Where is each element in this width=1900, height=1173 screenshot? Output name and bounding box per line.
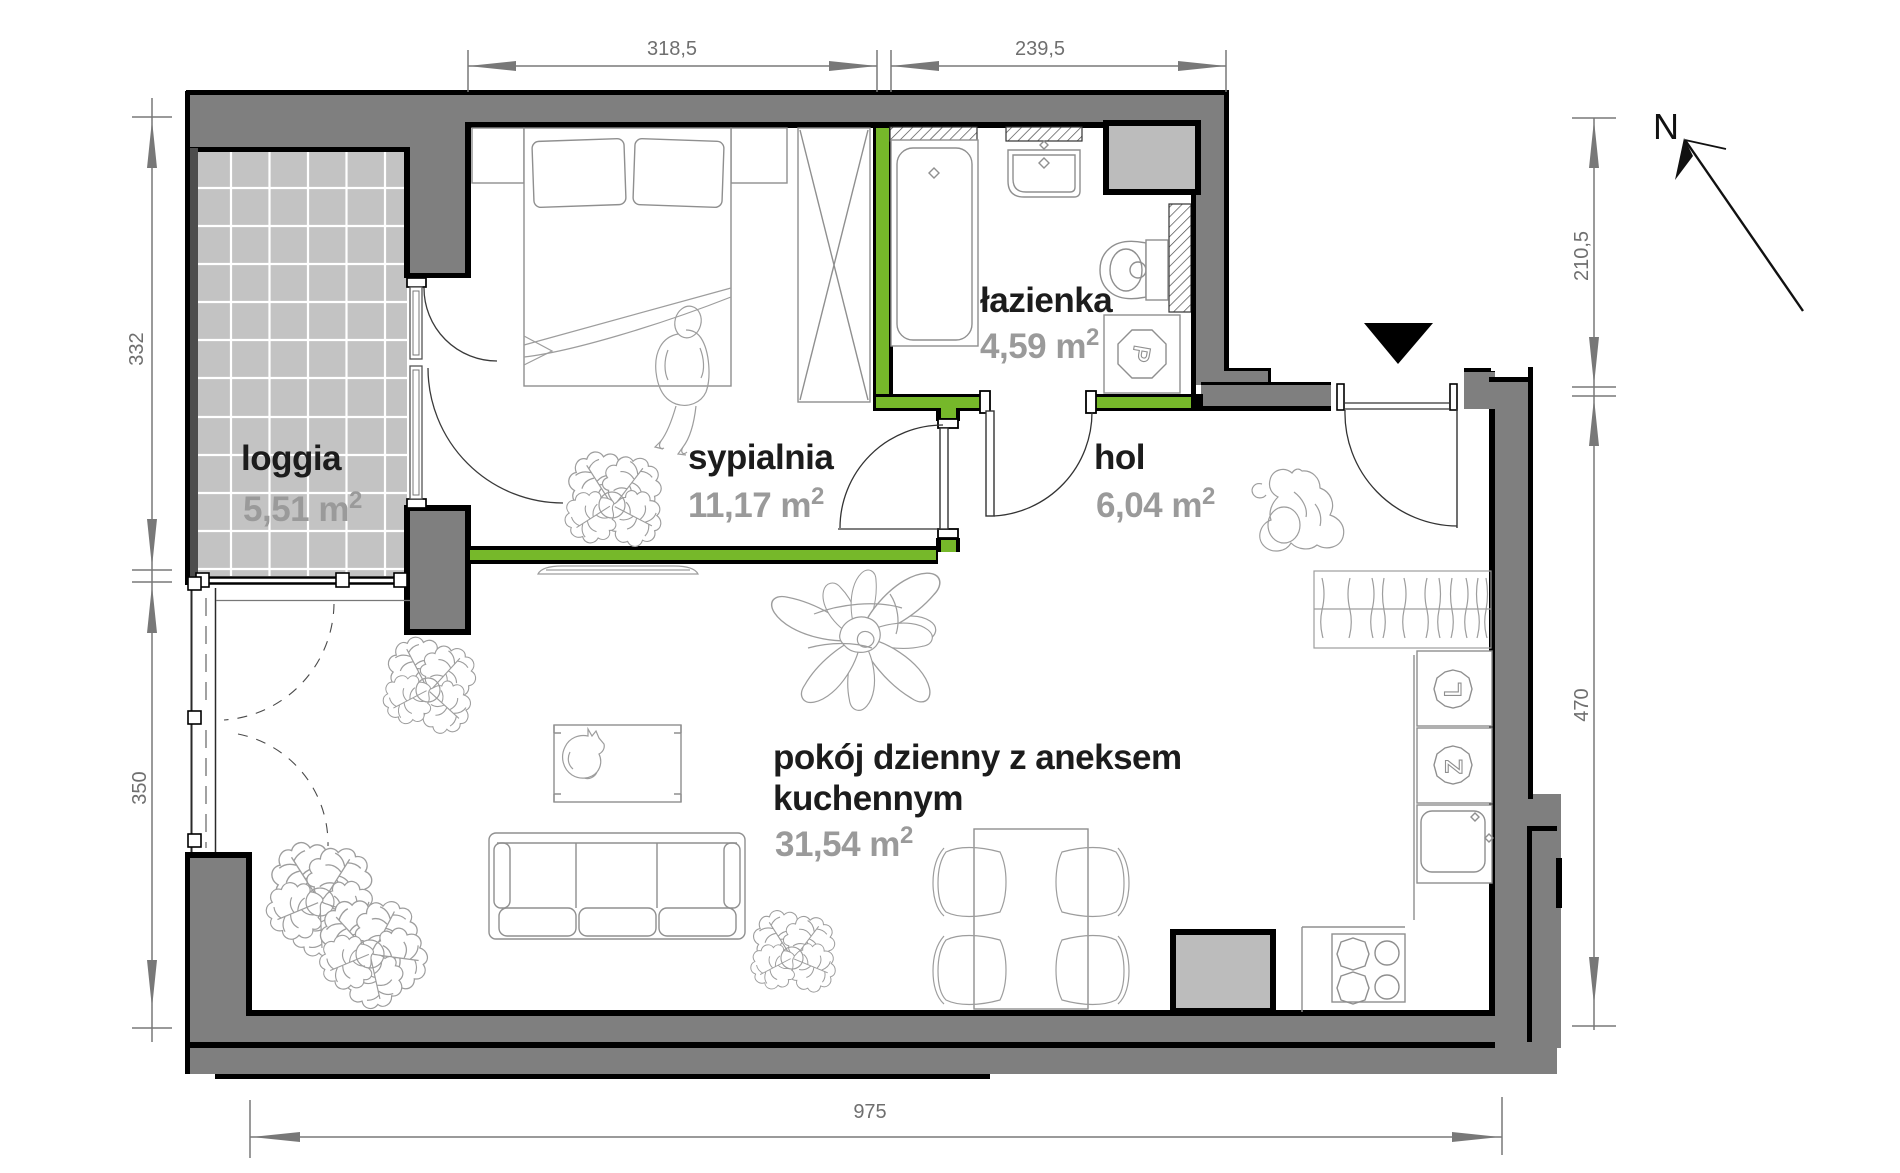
svg-text:N: N	[1653, 106, 1679, 147]
svg-text:kuchennym: kuchennym	[773, 779, 963, 818]
svg-text:332: 332	[126, 332, 148, 365]
svg-text:Z: Z	[1441, 759, 1468, 774]
svg-text:pokój dzienny z aneksem: pokój dzienny z aneksem	[773, 738, 1182, 777]
svg-text:350: 350	[129, 771, 151, 804]
svg-text:318,5: 318,5	[647, 38, 697, 60]
svg-text:975: 975	[853, 1101, 886, 1123]
svg-text:L: L	[1440, 682, 1467, 697]
svg-text:239,5: 239,5	[1015, 38, 1065, 60]
svg-text:4,59 m2: 4,59 m2	[980, 324, 1099, 366]
svg-text:6,04 m2: 6,04 m2	[1096, 483, 1215, 525]
svg-text:łazienka: łazienka	[980, 281, 1113, 320]
svg-text:210,5: 210,5	[1571, 231, 1593, 281]
svg-text:31,54 m2: 31,54 m2	[775, 822, 913, 864]
svg-text:11,17 m2: 11,17 m2	[688, 483, 824, 525]
svg-text:470: 470	[1571, 688, 1593, 721]
svg-text:sypialnia: sypialnia	[688, 438, 834, 477]
svg-text:hol: hol	[1094, 438, 1145, 477]
svg-text:loggia: loggia	[241, 439, 342, 478]
svg-text:5,51 m2: 5,51 m2	[243, 487, 362, 529]
